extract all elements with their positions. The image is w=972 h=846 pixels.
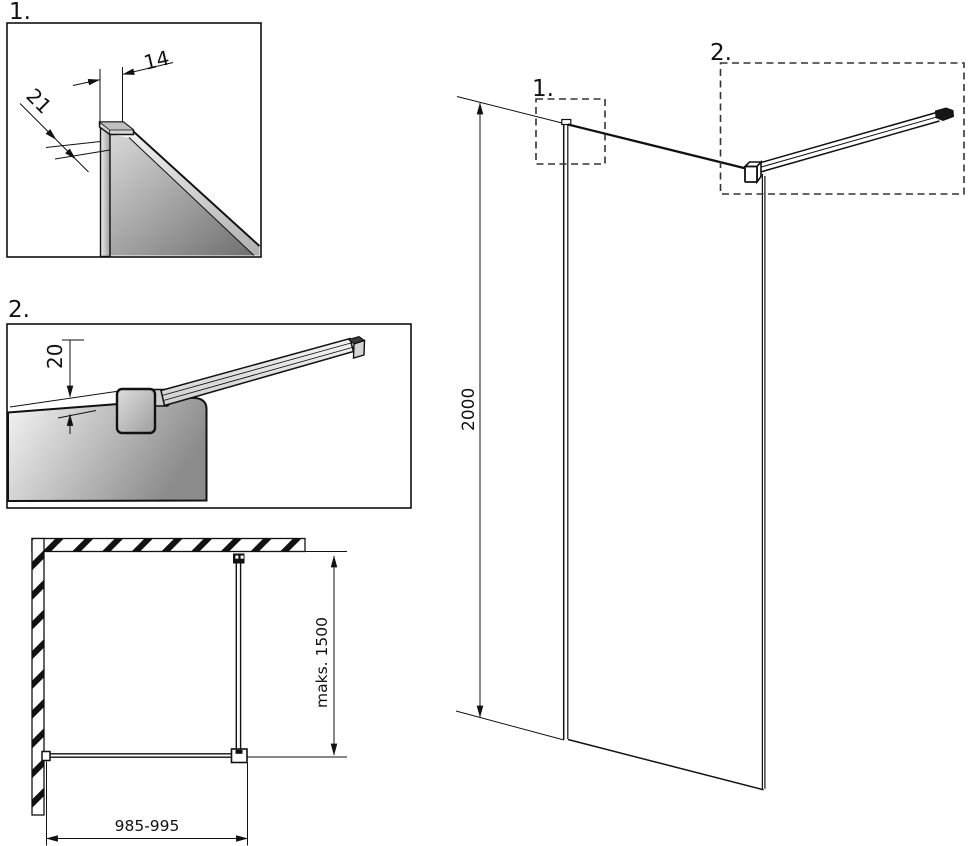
plan-view: maks. 1500 985-995	[32, 539, 347, 846]
elevation-wall-bracket	[936, 108, 954, 121]
dim-label-985-995: 985-995	[115, 817, 180, 835]
detail-1-label: 1.	[9, 0, 31, 25]
elevation-glass-panel	[568, 125, 765, 790]
elevation-view: 2000 1. 2.	[456, 40, 964, 790]
plan-wall-left	[32, 539, 44, 816]
dim-label-2000: 2000	[459, 388, 479, 431]
elevation-detail-marker-1: 1.	[532, 76, 554, 102]
detail-2-glass-edge	[8, 398, 207, 501]
detail-1-view: 1. 14	[7, 0, 261, 257]
plan-glass-panel	[233, 554, 245, 750]
plan-wall-top	[32, 539, 305, 552]
elevation-support-bar	[758, 108, 954, 172]
drawing-canvas: 1. 14	[0, 0, 972, 846]
plan-support-bar	[42, 749, 247, 763]
elevation-detail-marker-2: 2.	[710, 40, 732, 66]
elevation-bar-clamp	[745, 162, 761, 182]
technical-drawing-page: 1. 14	[0, 0, 972, 846]
plan-dimension-depth	[247, 552, 347, 758]
detail-2-view: 2. 20	[7, 297, 411, 508]
detail-2-label: 2.	[8, 297, 30, 323]
elevation-wall-profile	[562, 120, 571, 740]
dim-label-20: 20	[43, 344, 67, 369]
plan-bar-wall-fitting	[42, 752, 50, 761]
detail-2-bar-clamp	[117, 389, 155, 433]
dim-label-maks-1500: maks. 1500	[313, 617, 331, 708]
